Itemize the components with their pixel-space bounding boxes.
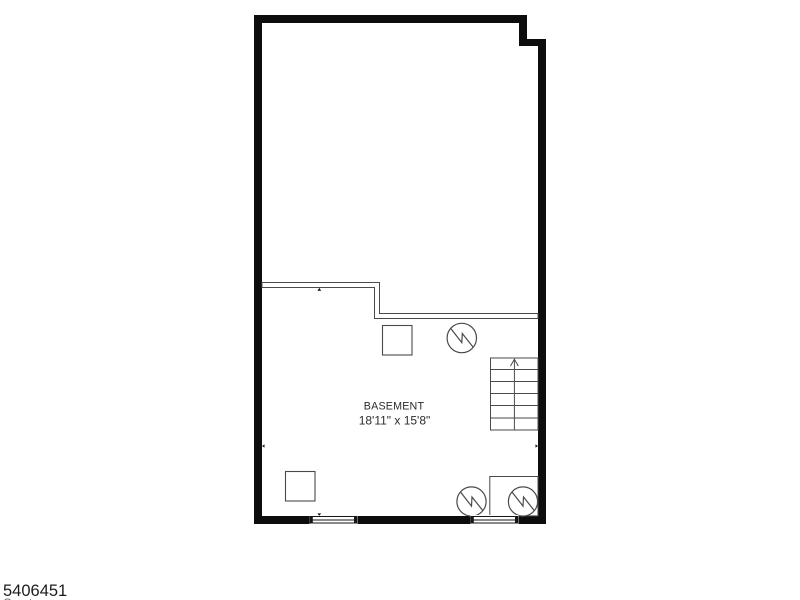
svg-text:18'11" x 15'8": 18'11" x 15'8"	[359, 413, 431, 427]
svg-text:BASEMENT: BASEMENT	[364, 401, 425, 413]
svg-text:5406451: 5406451	[3, 582, 67, 600]
